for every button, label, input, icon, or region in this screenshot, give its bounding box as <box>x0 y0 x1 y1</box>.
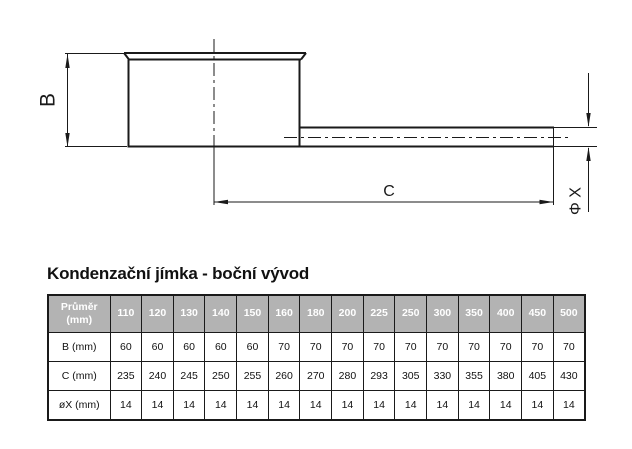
value-cell: 405 <box>522 362 554 391</box>
value-cell: 14 <box>173 391 205 420</box>
diameter-header-cell: 160 <box>268 295 300 333</box>
value-cell: 14 <box>268 391 300 420</box>
table-row: B (mm)606060606070707070707070707070 <box>48 333 585 362</box>
dimension-c: C <box>214 127 554 205</box>
page-title: Kondenzační jímka - boční vývod <box>47 264 309 284</box>
value-cell: 60 <box>237 333 269 362</box>
value-cell: 70 <box>458 333 490 362</box>
diameter-header-cell: 120 <box>142 295 174 333</box>
diameter-header-cell: 200 <box>332 295 364 333</box>
row-label-cell: C (mm) <box>48 362 110 391</box>
label-b: B <box>37 93 60 107</box>
value-cell: 250 <box>205 362 237 391</box>
spec-table: Průměr (mm) 1101201301401501601802002252… <box>47 294 586 421</box>
table-row: C (mm)2352402452502552602702802933053303… <box>48 362 585 391</box>
value-cell: 70 <box>427 333 459 362</box>
arrow-left <box>214 200 228 204</box>
value-cell: 70 <box>268 333 300 362</box>
value-cell: 240 <box>142 362 174 391</box>
value-cell: 14 <box>553 391 585 420</box>
diameter-header-cell: 350 <box>458 295 490 333</box>
value-cell: 14 <box>490 391 522 420</box>
value-cell: 14 <box>332 391 364 420</box>
value-cell: 70 <box>300 333 332 362</box>
value-cell: 70 <box>363 333 395 362</box>
value-cell: 14 <box>427 391 459 420</box>
centerlines <box>214 39 568 205</box>
value-cell: 380 <box>490 362 522 391</box>
value-cell: 355 <box>458 362 490 391</box>
value-cell: 70 <box>395 333 427 362</box>
value-cell: 255 <box>237 362 269 391</box>
diameter-header-cell: 250 <box>395 295 427 333</box>
value-cell: 60 <box>173 333 205 362</box>
value-cell: 14 <box>110 391 142 420</box>
arrow-up <box>65 54 69 68</box>
diameter-header-cell: 500 <box>553 295 585 333</box>
diameter-header-cell: 110 <box>110 295 142 333</box>
body-outline <box>124 53 554 147</box>
value-cell: 60 <box>142 333 174 362</box>
diameter-header-cell: 300 <box>427 295 459 333</box>
value-cell: 235 <box>110 362 142 391</box>
value-cell: 14 <box>363 391 395 420</box>
value-cell: 280 <box>332 362 364 391</box>
value-cell: 14 <box>237 391 269 420</box>
value-cell: 14 <box>300 391 332 420</box>
value-cell: 14 <box>205 391 237 420</box>
row-label-cell: B (mm) <box>48 333 110 362</box>
value-cell: 305 <box>395 362 427 391</box>
diameter-header-cell: 140 <box>205 295 237 333</box>
diameter-header-cell: 400 <box>490 295 522 333</box>
label-phi-x: Φ X <box>568 187 585 215</box>
value-cell: 14 <box>522 391 554 420</box>
diameter-header-cell: 150 <box>237 295 269 333</box>
diameter-header-cell: 180 <box>300 295 332 333</box>
diameter-header-cell: 225 <box>363 295 395 333</box>
diameter-header-cell: 130 <box>173 295 205 333</box>
value-cell: 14 <box>395 391 427 420</box>
corner-line1: Průměr <box>61 301 98 313</box>
value-cell: 14 <box>458 391 490 420</box>
value-cell: 70 <box>490 333 522 362</box>
value-cell: 60 <box>110 333 142 362</box>
arrow-down <box>65 133 69 147</box>
table-body: B (mm)606060606070707070707070707070C (m… <box>48 333 585 420</box>
arrow-right <box>540 200 554 204</box>
value-cell: 70 <box>553 333 585 362</box>
technical-drawing: B C Φ X <box>0 0 632 260</box>
value-cell: 14 <box>142 391 174 420</box>
table-row: øX (mm)141414141414141414141414141414 <box>48 391 585 420</box>
diameter-header-cell: 450 <box>522 295 554 333</box>
value-cell: 60 <box>205 333 237 362</box>
value-cell: 70 <box>332 333 364 362</box>
table-header-row: Průměr (mm) 1101201301401501601802002252… <box>48 295 585 333</box>
label-c: C <box>383 183 395 200</box>
corner-line2: (mm) <box>66 314 92 326</box>
value-cell: 430 <box>553 362 585 391</box>
value-cell: 260 <box>268 362 300 391</box>
row-label-cell: øX (mm) <box>48 391 110 420</box>
arrow-down <box>586 113 590 127</box>
value-cell: 330 <box>427 362 459 391</box>
arrow-up <box>586 147 590 161</box>
value-cell: 293 <box>363 362 395 391</box>
dimension-b: B <box>37 54 128 148</box>
value-cell: 245 <box>173 362 205 391</box>
catalog-page: B C Φ X Kondenzační jímka - bočn <box>0 0 632 449</box>
corner-header-cell: Průměr (mm) <box>48 295 110 333</box>
dimension-phi-x: Φ X <box>554 73 597 215</box>
value-cell: 270 <box>300 362 332 391</box>
value-cell: 70 <box>522 333 554 362</box>
